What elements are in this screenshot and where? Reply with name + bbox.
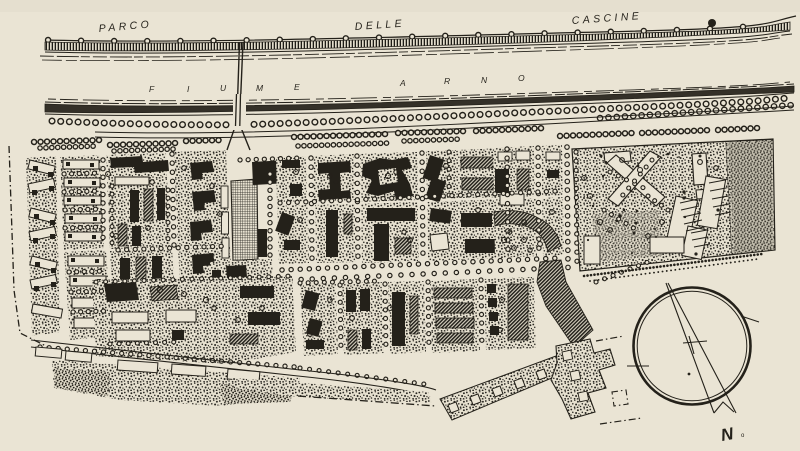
svg-text:N: N xyxy=(481,75,488,85)
svg-text:O: O xyxy=(518,73,525,83)
svg-text:R: R xyxy=(444,76,450,86)
svg-text:U: U xyxy=(220,83,227,93)
svg-text:F: F xyxy=(149,84,155,94)
svg-text:E: E xyxy=(294,82,300,92)
svg-text:A: A xyxy=(399,78,406,88)
svg-text:M: M xyxy=(256,83,264,93)
